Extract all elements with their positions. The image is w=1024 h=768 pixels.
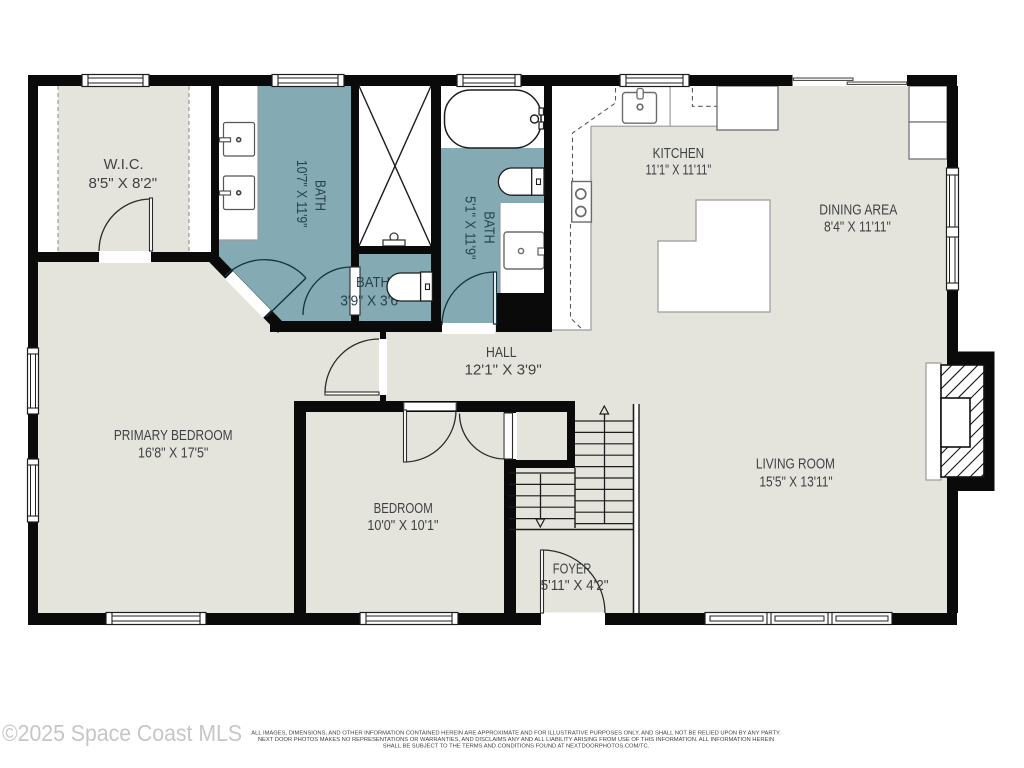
svg-text:ALL IMAGES, DIMENSIONS, AND OT: ALL IMAGES, DIMENSIONS, AND OTHER INFORM…: [251, 731, 781, 737]
svg-text:15'5" X 13'11": 15'5" X 13'11": [759, 473, 832, 490]
svg-text:10'0" X 10'1": 10'0" X 10'1": [367, 517, 438, 534]
svg-text:BATH: BATH: [356, 274, 390, 291]
svg-text:W.I.C.: W.I.C.: [104, 156, 144, 173]
svg-text:BATH: BATH: [481, 211, 498, 243]
svg-text:HALL: HALL: [486, 344, 517, 361]
svg-text:DINING AREA: DINING AREA: [819, 201, 897, 218]
svg-text:NEXT DOOR PHOTOS MAKES NO REPR: NEXT DOOR PHOTOS MAKES NO REPRESENTATION…: [258, 737, 774, 743]
svg-text:BEDROOM: BEDROOM: [374, 500, 433, 517]
svg-text:LIVING ROOM: LIVING ROOM: [756, 456, 835, 473]
svg-text:5'1" X 11'9": 5'1" X 11'9": [462, 196, 479, 259]
svg-text:8'5" X 8'2": 8'5" X 8'2": [89, 175, 158, 192]
svg-text:KITCHEN: KITCHEN: [653, 145, 705, 162]
svg-text:8'4" X 11'11": 8'4" X 11'11": [824, 218, 891, 235]
svg-text:SHALL BE SUBJECT TO THE TERMS: SHALL BE SUBJECT TO THE TERMS AND CONDIT…: [383, 744, 650, 750]
svg-text:11'1" X 11'11": 11'1" X 11'11": [646, 161, 712, 178]
svg-text:12'1" X 3'9": 12'1" X 3'9": [464, 361, 541, 378]
svg-text:PRIMARY BEDROOM: PRIMARY BEDROOM: [114, 427, 233, 444]
svg-text:©2025 Space Coast MLS: ©2025 Space Coast MLS: [2, 720, 242, 746]
svg-text:5'11" X 4'2": 5'11" X 4'2": [541, 577, 609, 594]
svg-text:FOYER: FOYER: [553, 561, 592, 578]
svg-text:16'8" X 17'5": 16'8" X 17'5": [138, 444, 208, 461]
svg-text:10'7" X 11'9": 10'7" X 11'9": [293, 160, 310, 227]
svg-text:BATH: BATH: [312, 180, 329, 211]
